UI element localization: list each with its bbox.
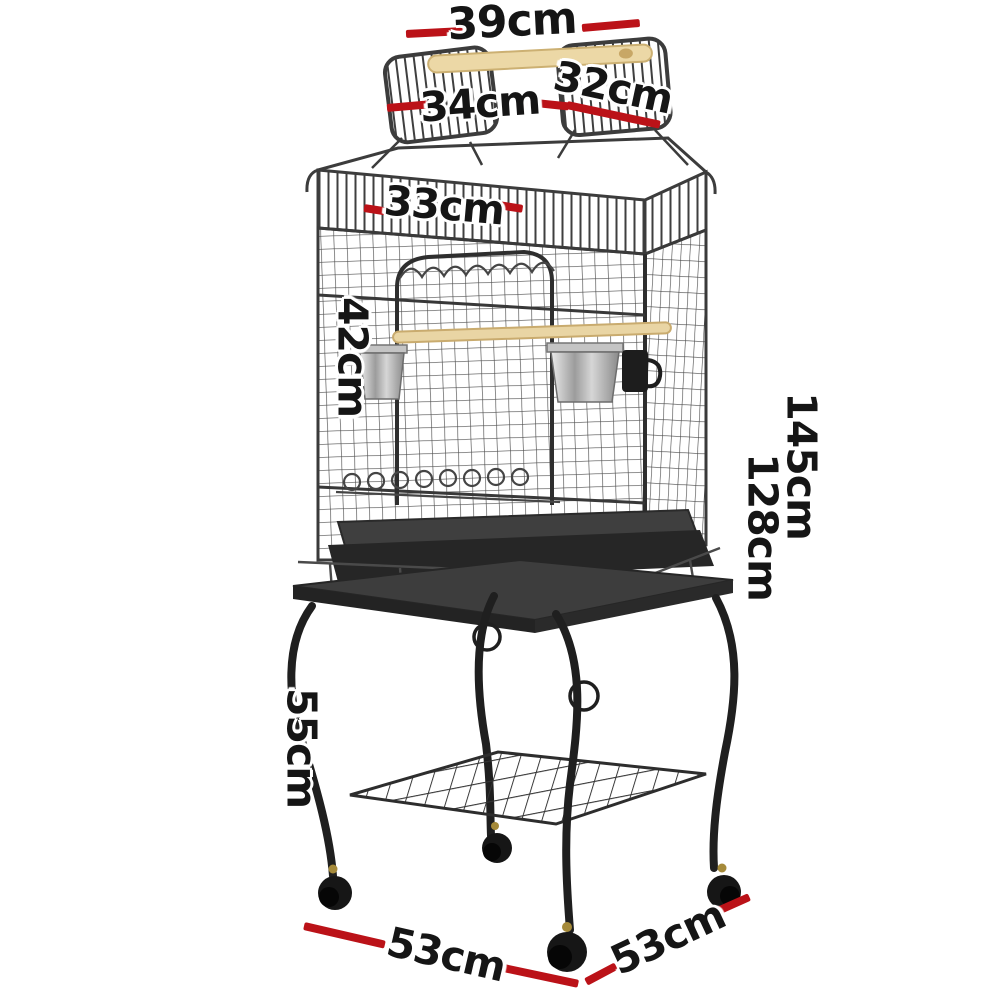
dimension-label-cage-height: 128cm — [742, 453, 783, 601]
dimension-label-total-height: 145cm — [781, 392, 822, 540]
dimension-label-stand-height: 55cm — [281, 688, 322, 808]
dimension-label-handle-width: 39cm — [446, 0, 577, 47]
dimension-label-door-width: 33cm — [382, 180, 505, 231]
dimension-label-roof-panel-left: 34cm — [419, 79, 542, 128]
storage-shelf — [350, 752, 706, 824]
caster-wheel-left — [318, 865, 352, 911]
bird-cage-illustration — [0, 0, 1000, 1000]
stand-leg-right — [713, 598, 734, 868]
dimension-label-door-height: 42cm — [332, 297, 373, 417]
bowl-bracket — [622, 350, 648, 392]
caster-wheel-front — [547, 922, 587, 972]
caster-wheel-back — [482, 822, 512, 863]
product-dimension-diagram: 39cm 34cm 32cm 33cm 42cm 145cm 128cm 55c… — [0, 0, 1000, 1000]
